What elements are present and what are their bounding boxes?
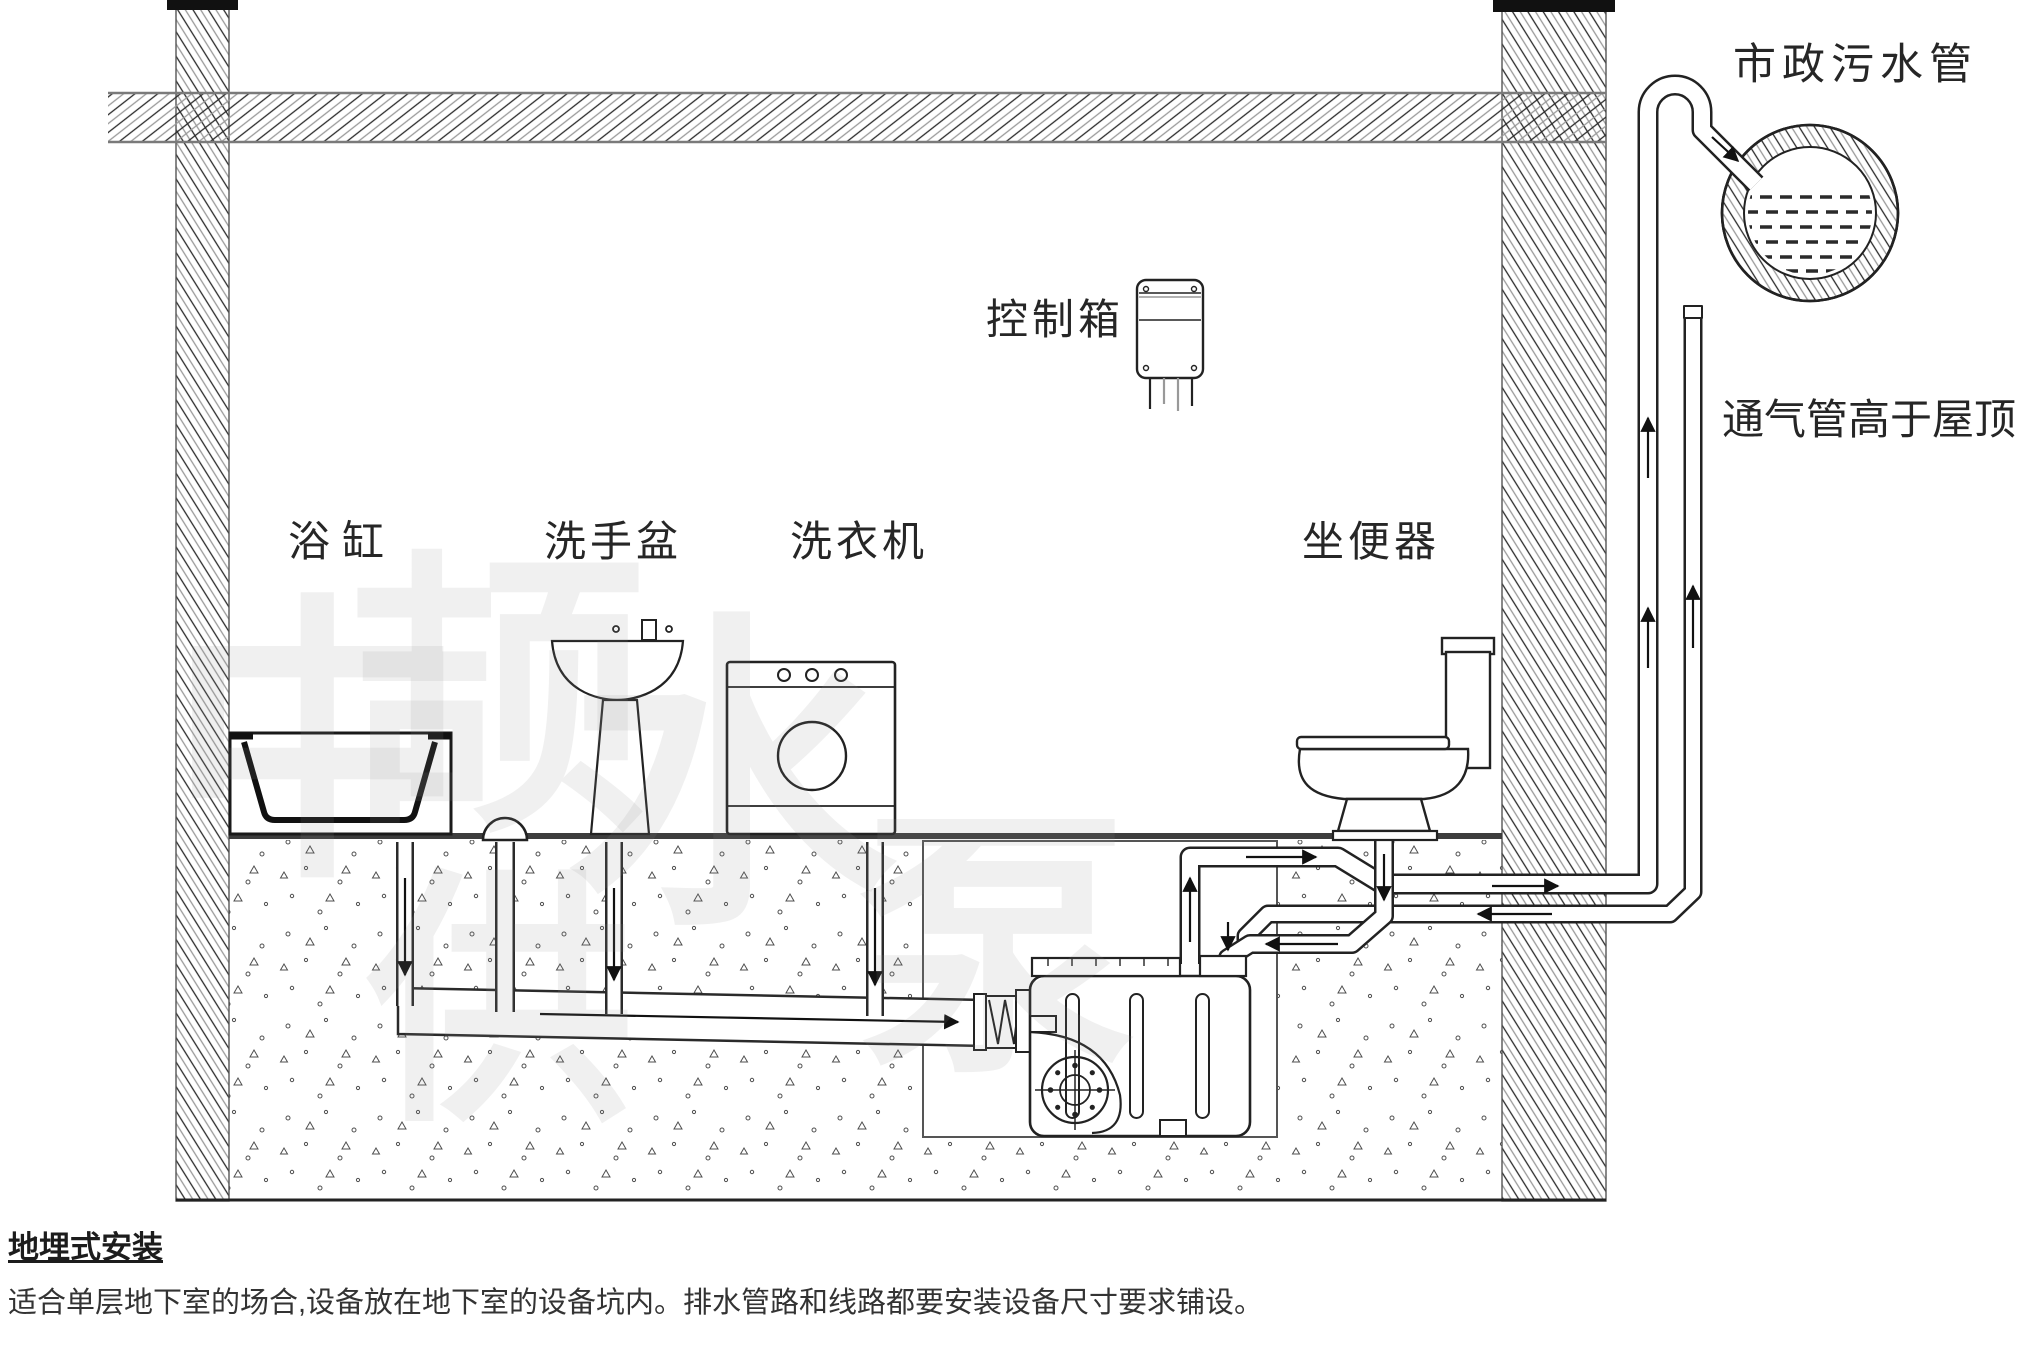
caption: 地埋式安装 适合单层地下室的场合,设备放在地下室的设备坑内。排水管路和线路都要安…: [8, 1222, 1608, 1321]
washing-machine-label: 洗衣机: [790, 520, 928, 566]
diagram-canvas: 浴缸 洗手盆 洗衣机 坐便器 控制箱 市政污水管 通气管高于屋顶 中 颉 供 水…: [0, 0, 2022, 1353]
control-wires: [1150, 378, 1192, 411]
toilet-label: 坐便器: [1302, 520, 1440, 566]
bathtub: [230, 733, 451, 834]
washing-machine: [727, 662, 895, 834]
vent-pipe-label: 通气管高于屋顶: [1722, 398, 2016, 444]
flexible-coupling: [974, 990, 1030, 1052]
floor-drain-trap: [483, 818, 527, 840]
installation-diagram: [0, 0, 2022, 1353]
wash-basin-label: 洗手盆: [544, 520, 682, 566]
control-box: [1137, 280, 1203, 411]
municipal-sewer-circle: [1722, 125, 1898, 301]
right-wall: [1502, 0, 1606, 1201]
bathtub-label: 浴缸: [288, 520, 396, 566]
pump-foot: [1160, 1120, 1186, 1136]
caption-body: 适合单层地下室的场合,设备放在地下室的设备坑内。排水管路和线路都要安装设备尺寸要…: [8, 1279, 1608, 1321]
vent-cap: [1684, 306, 1702, 318]
wall-cap-left: [167, 0, 238, 10]
wall-cap-right: [1493, 0, 1615, 12]
caption-title: 地埋式安装: [8, 1222, 163, 1267]
municipal-sewer-label: 市政污水管: [1733, 42, 1978, 89]
toilet: [1297, 638, 1494, 840]
ceiling-slab: [108, 93, 1606, 142]
discharge-pipe: [1190, 85, 1756, 964]
pump-inlet-flange: [1200, 956, 1246, 976]
left-wall: [176, 0, 229, 1201]
wash-basin: [552, 620, 683, 834]
pump-lid: [1032, 958, 1180, 976]
control-box-label: 控制箱: [986, 298, 1124, 344]
